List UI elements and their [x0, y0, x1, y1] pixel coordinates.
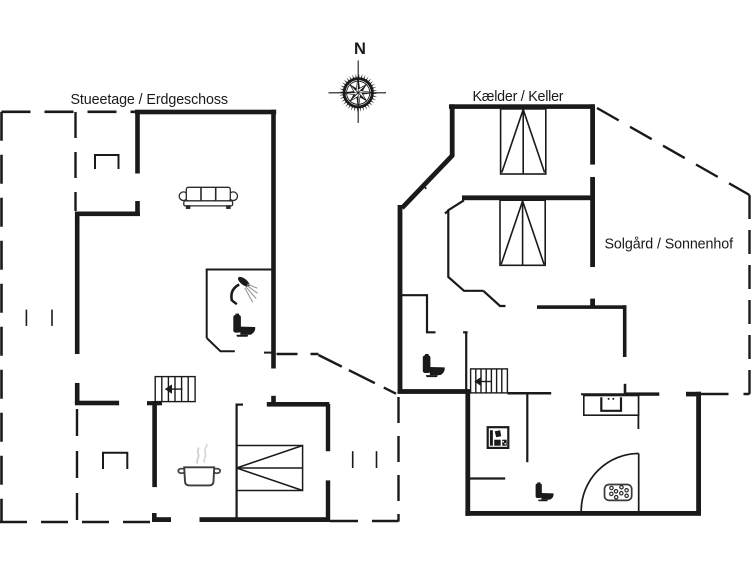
svg-text:Kælder / Keller: Kælder / Keller [473, 89, 564, 105]
svg-text:Solgård / Sonnenhof: Solgård / Sonnenhof [605, 237, 734, 253]
svg-text:N: N [354, 40, 366, 58]
svg-text:Stueetage / Erdgeschoss: Stueetage / Erdgeschoss [71, 92, 228, 108]
